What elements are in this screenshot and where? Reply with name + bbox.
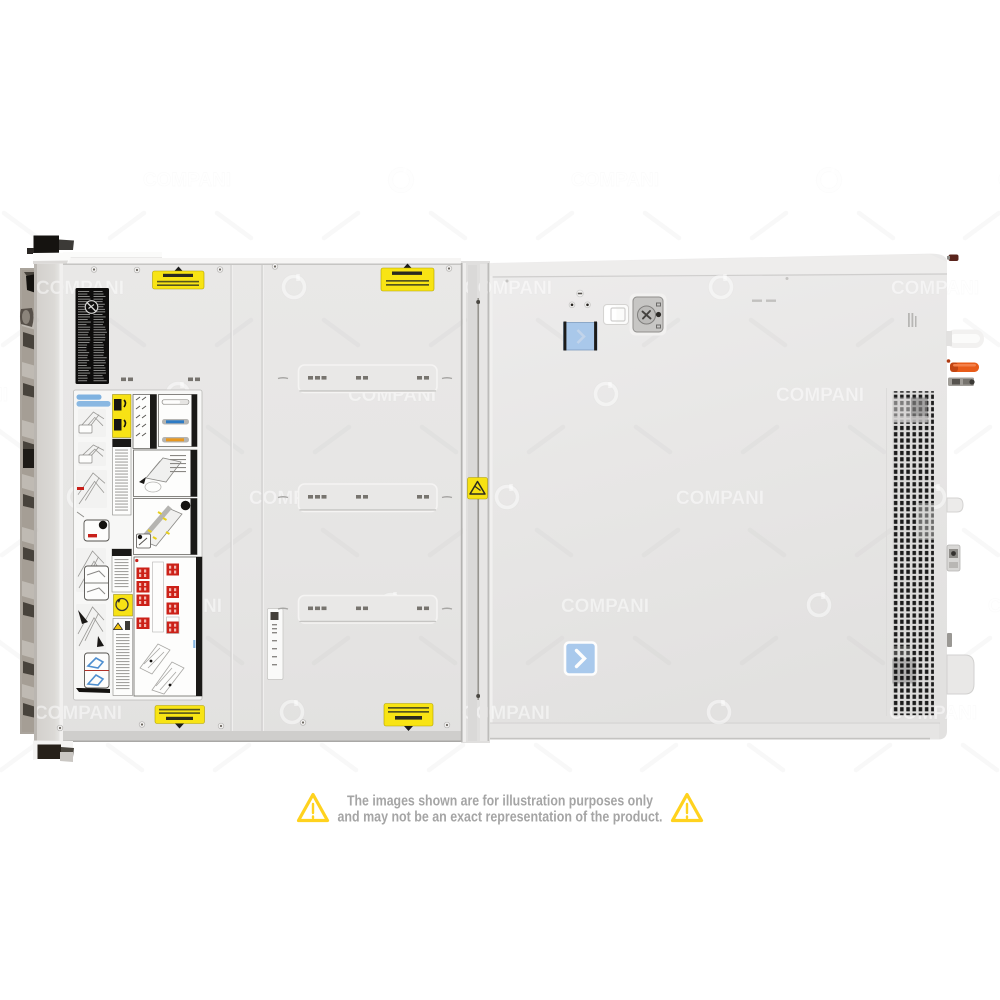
svg-text:COMPANI: COMPANI — [561, 595, 649, 617]
svg-text:The images shown are for illus: The images shown are for illustration pu… — [347, 794, 653, 810]
svg-text:COMPANI: COMPANI — [571, 169, 659, 191]
svg-text:COMPANI: COMPANI — [988, 595, 1000, 617]
svg-text:COMPANI: COMPANI — [143, 169, 231, 191]
svg-text:COMPANI: COMPANI — [676, 487, 764, 509]
svg-text:and may not be an exact repres: and may not be an exact representation o… — [338, 810, 663, 826]
svg-text:COMPANI: COMPANI — [891, 277, 979, 299]
svg-text:COMPANI: COMPANI — [34, 702, 122, 724]
svg-text:COMPANI: COMPANI — [0, 384, 8, 406]
svg-text:COMPANI: COMPANI — [776, 384, 864, 406]
